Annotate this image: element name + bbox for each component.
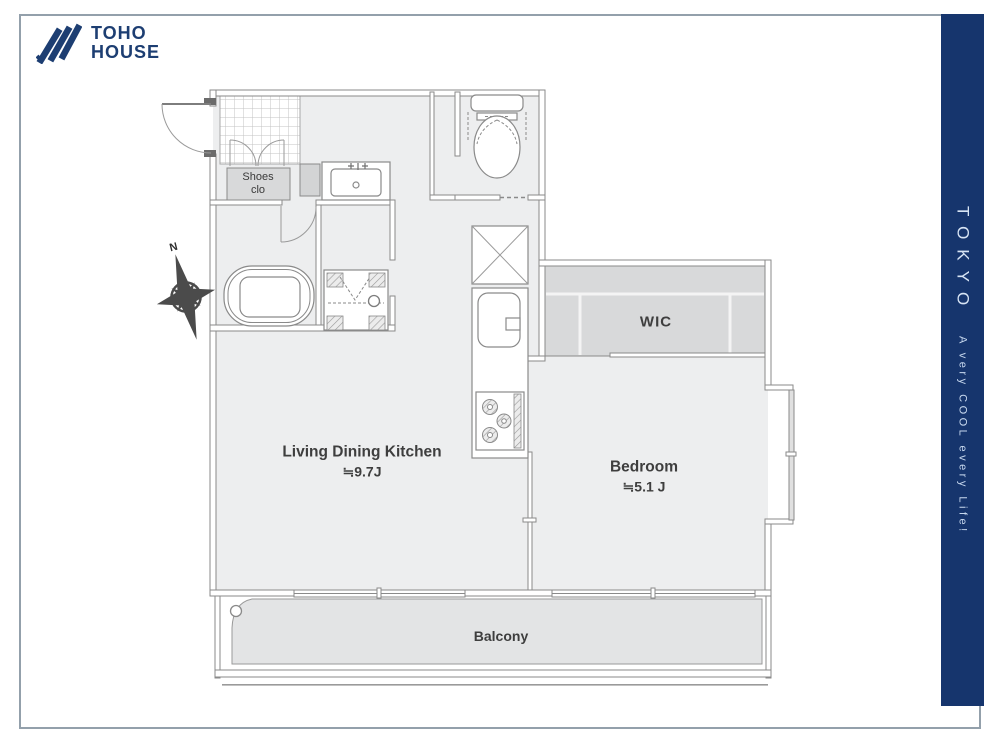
ldk-name: Living Dining Kitchen — [282, 444, 441, 462]
wic-closet — [545, 266, 765, 356]
washing-machine-icon — [324, 270, 388, 330]
bathtub-icon — [224, 266, 314, 326]
bay-window — [786, 390, 796, 520]
entrance-tile — [220, 96, 300, 164]
bedroom-size: ≒5.1 J — [610, 479, 678, 496]
floor-plan-page: TOHO HOUSE TOKYO A very COOL every Life! — [0, 0, 1000, 750]
refrigerator-space-icon — [472, 226, 528, 284]
bedroom-label: Bedroom ≒5.1 J — [610, 459, 678, 496]
balcony-label: Balcony — [474, 628, 528, 644]
bedroom-name: Bedroom — [610, 459, 678, 477]
shoes-label-line1: Shoes — [242, 171, 273, 184]
ldk-size: ≒9.7J — [282, 464, 441, 481]
stove-icon — [476, 392, 524, 450]
shoes-closet-label: Shoes clo — [242, 171, 273, 197]
balcony-drain-icon — [231, 606, 242, 617]
compass-north-label: N — [168, 241, 179, 255]
entrance-door — [162, 98, 216, 157]
shoes-label-line2: clo — [242, 184, 273, 197]
wic-label: WIC — [640, 314, 672, 331]
washbasin-icon — [322, 162, 390, 200]
ldk-label: Living Dining Kitchen ≒9.7J — [282, 444, 441, 481]
hall-cabinet — [300, 164, 320, 196]
